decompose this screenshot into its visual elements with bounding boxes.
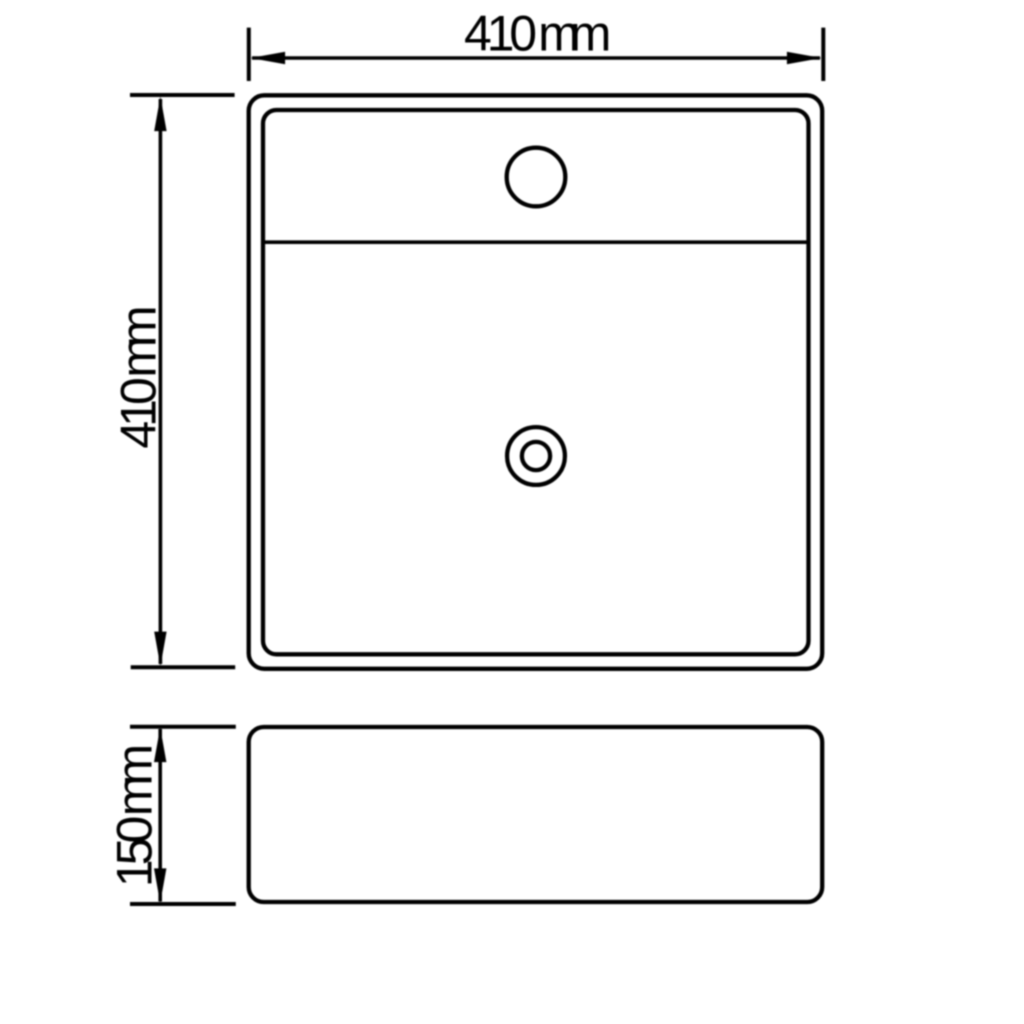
svg-text:410mm: 410mm bbox=[111, 308, 167, 449]
svg-text:150mm: 150mm bbox=[107, 747, 163, 888]
